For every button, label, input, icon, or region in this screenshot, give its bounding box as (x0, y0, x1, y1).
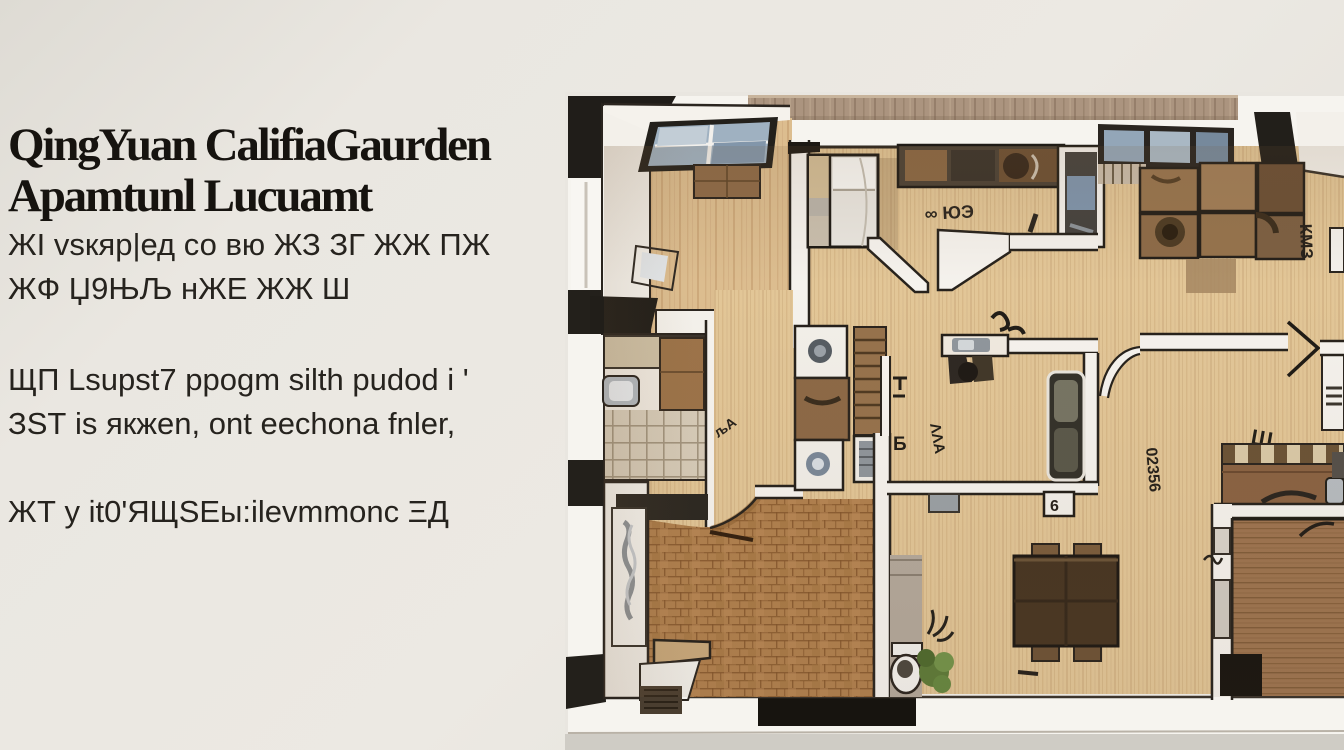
svg-text:6: 6 (1050, 498, 1059, 515)
svg-text:Б: Б (893, 434, 907, 455)
svg-text:КМЗ: КМЗ (1296, 223, 1316, 259)
svg-text:∞ ЮЭ: ∞ ЮЭ (924, 201, 974, 224)
